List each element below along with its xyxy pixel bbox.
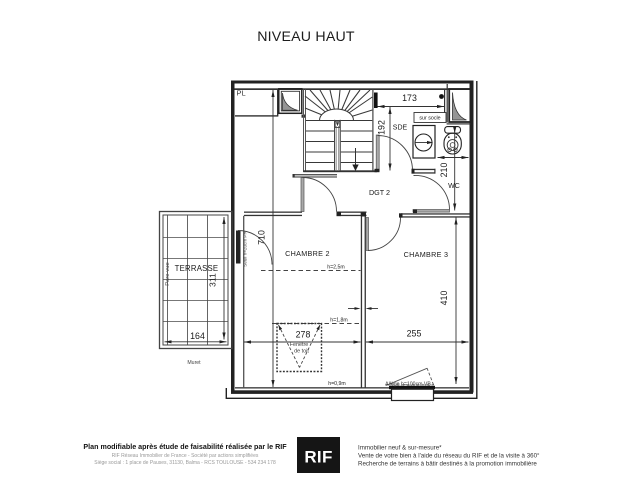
svg-text:RIF Réseau Immobilier de Fran: RIF Réseau Immobilier de France - Sociét… xyxy=(112,453,259,459)
svg-text:TERRASSE: TERRASSE xyxy=(175,264,219,273)
svg-text:192: 192 xyxy=(377,120,387,135)
svg-text:Muret: Muret xyxy=(187,360,201,366)
svg-text:Pare-vue: Pare-vue xyxy=(165,262,171,286)
svg-text:164: 164 xyxy=(190,331,205,341)
svg-text:210: 210 xyxy=(439,163,449,178)
svg-text:sur socle: sur socle xyxy=(419,116,440,122)
svg-text:h=1,8m: h=1,8m xyxy=(330,318,347,324)
svg-text:Recherche de terrains à bâtir: Recherche de terrains à bâtir destinés à… xyxy=(358,461,537,468)
svg-text:h=2,5m: h=2,5m xyxy=(327,265,344,271)
svg-text:NIVEAU HAUT: NIVEAU HAUT xyxy=(257,29,355,45)
svg-text:311: 311 xyxy=(208,273,218,287)
svg-text:173: 173 xyxy=(402,93,417,103)
svg-text:Siège social : 1 place de Paus: Siège social : 1 place de Pauses, 31130,… xyxy=(94,460,276,466)
svg-text:PL: PL xyxy=(237,89,246,98)
svg-text:de toit: de toit xyxy=(294,348,309,354)
svg-text:Plan modifiable après étude de: Plan modifiable après étude de faisabili… xyxy=(83,443,287,451)
svg-text:DGT 2: DGT 2 xyxy=(369,188,390,197)
svg-text:410: 410 xyxy=(439,291,449,306)
svg-text:Vente de votre bien à l'aide d: Vente de votre bien à l'aide du réseau d… xyxy=(358,453,540,460)
svg-text:SDE: SDE xyxy=(393,125,408,132)
svg-text:Seuil h=20cm PR: Seuil h=20cm PR xyxy=(243,231,248,267)
svg-text:Allège h=100cm VB: Allège h=100cm VB xyxy=(385,381,431,387)
svg-text:CHAMBRE 3: CHAMBRE 3 xyxy=(404,250,449,259)
svg-text:RIF: RIF xyxy=(304,448,332,467)
svg-text:Immobilier neuf & sur-mesure*: Immobilier neuf & sur-mesure* xyxy=(358,444,442,451)
svg-text:Fenêtre: Fenêtre xyxy=(290,342,309,348)
svg-text:WC: WC xyxy=(448,183,460,190)
svg-text:278: 278 xyxy=(296,330,311,340)
svg-text:255: 255 xyxy=(407,329,422,339)
svg-text:h=0,9m: h=0,9m xyxy=(328,381,345,387)
svg-text:CHAMBRE 2: CHAMBRE 2 xyxy=(285,249,330,258)
